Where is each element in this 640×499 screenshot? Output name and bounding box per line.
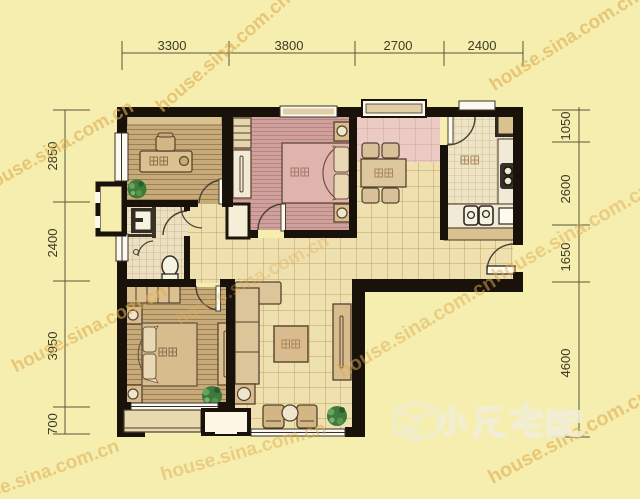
svg-text:700: 700 bbox=[45, 413, 60, 435]
svg-text:2400: 2400 bbox=[45, 229, 60, 258]
svg-text:2400: 2400 bbox=[468, 38, 497, 53]
svg-text:1050: 1050 bbox=[558, 112, 573, 141]
svg-text:2700: 2700 bbox=[384, 38, 413, 53]
svg-text:3300: 3300 bbox=[158, 38, 187, 53]
svg-text:3800: 3800 bbox=[275, 38, 304, 53]
svg-text:2600: 2600 bbox=[558, 175, 573, 204]
svg-text:4600: 4600 bbox=[558, 349, 573, 378]
